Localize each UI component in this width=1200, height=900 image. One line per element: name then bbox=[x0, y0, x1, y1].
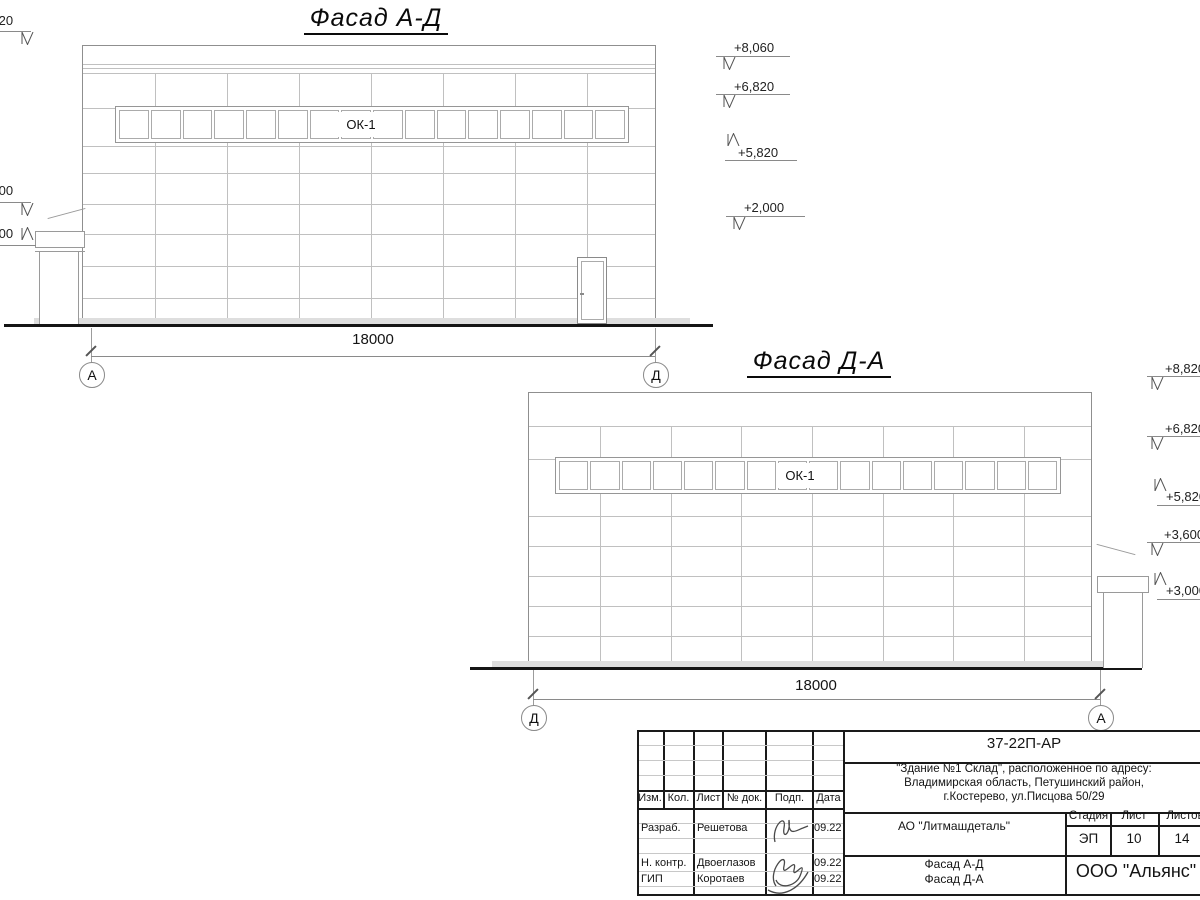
elevation-arrow-down-icon bbox=[21, 203, 34, 216]
elevation-mark-3000-text: +3,000 bbox=[0, 227, 19, 240]
client-name: АО "Литмашдеталь" bbox=[845, 820, 1063, 833]
facade1-ground-line bbox=[4, 324, 713, 327]
row-name: Двоеглазов bbox=[697, 857, 755, 870]
facade1-door-handle bbox=[580, 293, 584, 295]
window-cell bbox=[559, 461, 588, 490]
panel-row-line bbox=[83, 298, 655, 299]
window-cell bbox=[310, 110, 340, 139]
window-cell bbox=[840, 461, 869, 490]
signature-icon bbox=[767, 808, 811, 850]
f2-elevation-mark-3000-line bbox=[1157, 599, 1200, 600]
sheets-total: 14 bbox=[1160, 832, 1200, 845]
document-code: 37-22П-АР bbox=[845, 737, 1200, 750]
elevation-arrow-down-icon bbox=[1151, 437, 1164, 450]
elevation-mark-8820-text: +8,820 bbox=[0, 14, 19, 27]
panel-row-line bbox=[529, 426, 1091, 427]
elevation-mark-8060-text: +8,060 bbox=[718, 41, 790, 54]
titleblock-row-line bbox=[639, 871, 843, 872]
window-cell bbox=[468, 110, 498, 139]
col-header-izm: Изм. bbox=[637, 792, 663, 805]
facade1-wall bbox=[82, 45, 656, 324]
facade2-ground-line bbox=[470, 667, 1142, 670]
stage-label: Стадия bbox=[1067, 810, 1110, 823]
stage-value: ЭП bbox=[1067, 832, 1110, 845]
window-cell bbox=[532, 110, 562, 139]
panel-row-line bbox=[83, 234, 655, 235]
col-header-data: Дата bbox=[814, 792, 843, 805]
facade1-door-leaf bbox=[581, 261, 604, 320]
facade1-dimension-text: 18000 bbox=[338, 333, 408, 346]
f2-elevation-mark-5820-text: +5,820 bbox=[1166, 490, 1200, 503]
facade2-axis-d: Д bbox=[521, 705, 547, 731]
col-header-podp: Подп. bbox=[767, 792, 812, 805]
window-cell bbox=[653, 461, 682, 490]
elevation-arrow-down-icon bbox=[733, 217, 746, 230]
window-cell bbox=[437, 110, 467, 139]
f2-elevation-mark-3600-text: +3,600 bbox=[1164, 528, 1200, 541]
panel-row-line bbox=[83, 73, 655, 74]
col-header-doc: № док. bbox=[724, 792, 765, 805]
sheets-label: Листов bbox=[1160, 810, 1200, 823]
window-cell bbox=[214, 110, 244, 139]
facade2-wall bbox=[528, 392, 1092, 667]
row-date: 09.22 bbox=[814, 857, 842, 870]
facade2-title: Фасад Д-А bbox=[724, 347, 914, 376]
facade1-window-label: ОК-1 bbox=[338, 112, 384, 137]
window-cell bbox=[1028, 461, 1057, 490]
facade2-dimension-text: 18000 bbox=[781, 679, 851, 692]
elevation-arrow-up-icon bbox=[21, 227, 34, 240]
window-cell bbox=[684, 461, 713, 490]
facade1-canopy-slope bbox=[48, 208, 86, 219]
elevation-mark-6820-text: +6,820 bbox=[718, 80, 790, 93]
col-header-kol: Кол. bbox=[664, 792, 693, 805]
f2-elevation-mark-8820-text: +8,820 bbox=[1165, 362, 1200, 375]
elevation-mark-3000-line bbox=[0, 245, 36, 246]
panel-row-line bbox=[529, 516, 1091, 517]
facade1-porch-roof bbox=[35, 231, 85, 248]
panel-row-line bbox=[529, 636, 1091, 637]
window-cell bbox=[715, 461, 744, 490]
elevation-arrow-down-icon bbox=[1151, 377, 1164, 390]
facade1-axis-a: А bbox=[79, 362, 105, 388]
panel-row-line bbox=[83, 146, 655, 147]
window-cell bbox=[151, 110, 181, 139]
window-cell bbox=[903, 461, 932, 490]
row-date: 09.22 bbox=[814, 822, 842, 835]
elevation-arrow-down-icon bbox=[1151, 543, 1164, 556]
company-name: ООО "Альянс" bbox=[1067, 865, 1200, 878]
window-cell bbox=[183, 110, 213, 139]
row-role: Разраб. bbox=[641, 822, 681, 835]
panel-row-line bbox=[83, 64, 655, 65]
facade2-porch-roof bbox=[1097, 576, 1149, 593]
project-address-line2: Владимирская область, Петушинский район, bbox=[845, 777, 1200, 790]
project-address-line1: "Здание №1 Склад", расположенное по адре… bbox=[845, 763, 1200, 776]
window-cell bbox=[997, 461, 1026, 490]
titleblock-row-line bbox=[639, 853, 843, 854]
window-cell bbox=[278, 110, 308, 139]
window-cell bbox=[590, 461, 619, 490]
window-cell bbox=[119, 110, 149, 139]
elevation-arrow-down-icon bbox=[723, 57, 736, 70]
facade2-axis-a: А bbox=[1088, 705, 1114, 731]
window-cell bbox=[747, 461, 776, 490]
elevation-mark-5820-text: +5,820 bbox=[738, 146, 778, 159]
window-cell bbox=[622, 461, 651, 490]
titleblock-line bbox=[637, 808, 843, 810]
elevation-arrow-down-icon bbox=[21, 32, 34, 45]
f2-elevation-mark-6820-text: +6,820 bbox=[1165, 422, 1200, 435]
elevation-mark-5820-line bbox=[725, 160, 797, 161]
facade1-dimension-line bbox=[91, 356, 655, 357]
facade1-window-band: ОК-1 bbox=[115, 106, 629, 143]
facade2-canopy-slope bbox=[1097, 544, 1136, 555]
facade2-dimension-line bbox=[533, 699, 1100, 700]
window-cell bbox=[872, 461, 901, 490]
titleblock-row-line bbox=[639, 760, 843, 761]
row-name: Коротаев bbox=[697, 873, 745, 886]
facade2-porch-column bbox=[1103, 593, 1143, 668]
panel-row-line bbox=[529, 606, 1091, 607]
panel-row-line bbox=[83, 266, 655, 267]
col-header-list: Лист bbox=[695, 792, 722, 805]
panel-row-line bbox=[529, 576, 1091, 577]
window-cell bbox=[564, 110, 594, 139]
sheet-number: 10 bbox=[1112, 832, 1156, 845]
row-name: Решетова bbox=[697, 822, 747, 835]
window-cell bbox=[500, 110, 530, 139]
facade1-title: Фасад А-Д bbox=[281, 4, 471, 33]
window-cell bbox=[246, 110, 276, 139]
panel-row-line bbox=[529, 546, 1091, 547]
window-cell bbox=[965, 461, 994, 490]
facade1-axis-d: Д bbox=[643, 362, 669, 388]
window-cell bbox=[595, 110, 625, 139]
facade2-window-band: ОК-1 bbox=[555, 457, 1061, 494]
titleblock-line bbox=[1065, 825, 1200, 827]
row-role: ГИП bbox=[641, 873, 663, 886]
signature-icon bbox=[764, 846, 812, 894]
project-address-line3: г.Костерево, ул.Писцова 50/29 bbox=[845, 791, 1200, 804]
panel-row-line bbox=[83, 68, 655, 69]
panel-row-line bbox=[83, 204, 655, 205]
facade1-door bbox=[577, 257, 607, 324]
elevation-mark-3600-text: +3,600 bbox=[0, 184, 19, 197]
elevation-arrow-down-icon bbox=[723, 95, 736, 108]
facade2-window-label: ОК-1 bbox=[777, 463, 823, 488]
facade1-porch-column bbox=[39, 252, 79, 324]
panel-row-line bbox=[83, 173, 655, 174]
titleblock-row-line bbox=[639, 745, 843, 746]
f2-elevation-mark-3000-text: +3,000 bbox=[1166, 584, 1200, 597]
titleblock-row-line bbox=[639, 886, 843, 887]
titleblock-line bbox=[843, 855, 1200, 857]
drawing-name-line2: Фасад Д-А bbox=[845, 873, 1063, 886]
elevation-mark-2000-text: +2,000 bbox=[728, 201, 800, 214]
titleblock-row-line bbox=[639, 838, 843, 839]
window-cell bbox=[405, 110, 435, 139]
drawing-name-line1: Фасад А-Д bbox=[845, 858, 1063, 871]
row-date: 09.22 bbox=[814, 873, 842, 886]
titleblock-row-line bbox=[639, 775, 843, 776]
row-role: Н. контр. bbox=[641, 857, 686, 870]
sheet-label: Лист bbox=[1112, 810, 1156, 823]
f2-elevation-mark-5820-line bbox=[1157, 505, 1200, 506]
drawing-sheet: Фасад А-Д ОК-1 18000 А Д +8,060 +6,820 +… bbox=[0, 0, 1200, 900]
window-cell bbox=[934, 461, 963, 490]
